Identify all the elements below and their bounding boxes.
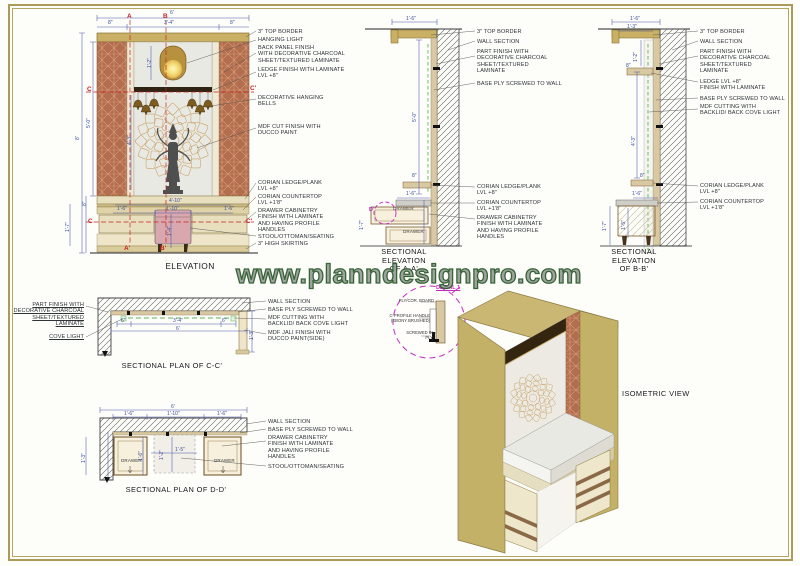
dim: 1'-10" — [166, 207, 179, 213]
callout: WALL SECTION — [268, 419, 310, 425]
dim: 1'-2" — [634, 52, 640, 62]
callout: 3" TOP BORDER — [700, 29, 745, 35]
marker: D' — [369, 207, 374, 213]
drawing-sheet: ELEVATIONSECTIONAL ELEVATION OF A-A'SECT… — [0, 0, 800, 566]
isometric-title: ISOMETRIC VIEW — [622, 390, 690, 399]
callout: DRAWER CABINETRY FINISH WITH LAMINATE AN… — [268, 435, 333, 461]
dim: 1'-3" — [250, 330, 256, 340]
marker: C — [88, 218, 93, 225]
dim: 1'-6" — [139, 451, 145, 461]
callout: STOOL/OTTOMAN/SEATING — [268, 464, 344, 470]
dim: 8" — [108, 21, 113, 27]
callout: DECORATIVE HANGING BELLS — [258, 95, 323, 108]
dim: 1'-2" — [160, 450, 166, 460]
dim: 6" — [121, 319, 126, 325]
callout: LEDGE LVL +8" FINISH WITH LAMINATE — [700, 79, 765, 92]
elevation-title: ELEVATION — [165, 262, 214, 272]
dim: 1'-5" — [622, 220, 628, 230]
dim: 1'-6" — [117, 207, 127, 213]
marker: B' — [160, 245, 166, 252]
dim: 1'-7" — [603, 221, 609, 231]
dim: 1'-7" — [66, 222, 72, 232]
detail-label: SCREWED IN PLY — [406, 331, 433, 341]
detail-label: PLY/COR. BOARD — [399, 299, 434, 304]
plan-cc-title: SECTIONAL PLAN OF C-C' — [122, 362, 223, 371]
watermark: www.planndesignpro.com — [236, 261, 582, 288]
dim: 4'-3" — [128, 135, 134, 145]
callout: COVE LIGHT — [49, 334, 84, 340]
dim: 1'-10" — [167, 412, 180, 418]
dim: 1'-5" — [175, 448, 185, 454]
plan-dd-title: SECTIONAL PLAN OF D-D' — [126, 486, 227, 495]
dim: 8" — [640, 174, 645, 180]
dim: 1'-3" — [82, 453, 88, 463]
dim: 3'-4" — [164, 21, 174, 27]
dim: 8" — [230, 21, 235, 27]
dim: 1'-7" — [360, 220, 366, 230]
callout: PART FINISH WITH DECORATIVE CHARCOAL SHE… — [14, 302, 85, 328]
callout: DRAWER CABINETRY FINISH WITH LAMINATE AN… — [258, 208, 323, 234]
callout: BACK PANEL FINISH WITH DECORATIVE CHARCO… — [258, 45, 345, 64]
drawer-label: DRAWER — [214, 458, 235, 463]
dim: 6" — [222, 319, 227, 325]
callout: STOOL/OTTOMAN/SEATING — [258, 234, 334, 240]
callout: 3" HIGH SKIRTING — [258, 241, 308, 247]
callout: BASE PLY SCREWED TO WALL — [268, 427, 353, 433]
callout: BASE PLY SCREWED TO WALL — [477, 81, 562, 87]
dim: 5'-0" — [87, 118, 93, 128]
callout: HANGING LIGHT — [258, 37, 303, 43]
callout: MDF CUTTING WITH BACKLID/ BACK COVE LIGH… — [268, 315, 348, 328]
dim: 6' — [170, 11, 174, 17]
dim: 1'-6" — [406, 192, 416, 198]
dim: 3'-4" — [173, 319, 183, 325]
callout: MDF CUTTING WITH BACKLID/ BACK COVE LIGH… — [700, 104, 780, 117]
marker: A — [127, 13, 132, 20]
callout: CORIAN LEDGE/PLANK LVL +8" — [700, 183, 764, 196]
dim: 8' — [76, 136, 82, 140]
marker: C — [87, 86, 92, 93]
callout: BASE PLY SCREWED TO WALL — [268, 307, 353, 313]
section-bb-title: SECTIONAL ELEVATION OF B-B' — [611, 248, 657, 274]
marker: C' — [246, 218, 252, 225]
callout: BASE PLY SCREWED TO WALL — [700, 96, 785, 102]
detail-label: C-PROFILE HANDLE (EBONY BRUSHED) — [390, 314, 431, 324]
dim: 8" — [626, 64, 631, 70]
dim: 6' — [171, 405, 175, 411]
callout: WALL SECTION — [477, 39, 519, 45]
callout: CORIAN LEDGE/PLANK LVL +8" — [477, 184, 541, 197]
callout: 3" TOP BORDER — [258, 29, 303, 35]
marker: C' — [250, 85, 256, 92]
callout: CORIAN COUNTERTOP LVL +1'8" — [700, 199, 764, 212]
callout: WALL SECTION — [268, 299, 310, 305]
dim: 1'-6" — [630, 17, 640, 23]
dim: 5'-0" — [413, 112, 419, 122]
callout: CORIAN COUNTERTOP LVL +1'8" — [477, 200, 541, 213]
dim: 4'-3" — [632, 136, 638, 146]
dim: 1'-6" — [124, 412, 134, 418]
marker: A' — [124, 245, 130, 252]
dim: 4'-10" — [169, 199, 182, 205]
dim: 1'-2" — [148, 58, 154, 68]
callout: CORIAN COUNTERTOP LVL +1'8" — [258, 194, 322, 207]
drawer-label: DRAWER — [393, 206, 414, 211]
callout: WALL SECTION — [700, 39, 742, 45]
dim: 1'-6" — [632, 192, 642, 198]
callout: LEDGE FINISH WITH LAMINATE LVL +8" — [258, 67, 344, 80]
callout: PART FINISH WITH DECORATIVE CHARCOAL SHE… — [477, 49, 548, 75]
dim: 1'-6" — [217, 412, 227, 418]
callout: MDF JALI FINISH WITH DUCCO PAINT(SIDE) — [268, 330, 331, 343]
dim: 1'-6" — [224, 207, 234, 213]
dim: 1'-3" — [627, 25, 637, 31]
dim: 8" — [412, 174, 417, 180]
callout: DRAWER CABINETRY FINISH WITH LAMINATE AN… — [477, 215, 542, 241]
callout: CORIAN LEDGE/PLANK LVL +8" — [258, 180, 322, 193]
callout: 3" TOP BORDER — [477, 29, 522, 35]
dim: 8" — [83, 201, 89, 206]
callout: PART FINISH WITH DECORATIVE CHARCOAL SHE… — [700, 49, 771, 75]
callout: MDF CUT FINISH WITH DUCCO PAINT — [258, 124, 321, 137]
dim: 1'-6" — [406, 17, 416, 23]
dim: 6' — [176, 327, 180, 333]
dim: 1'-4" — [168, 226, 174, 236]
drawer-label: DRAWER — [403, 229, 424, 234]
